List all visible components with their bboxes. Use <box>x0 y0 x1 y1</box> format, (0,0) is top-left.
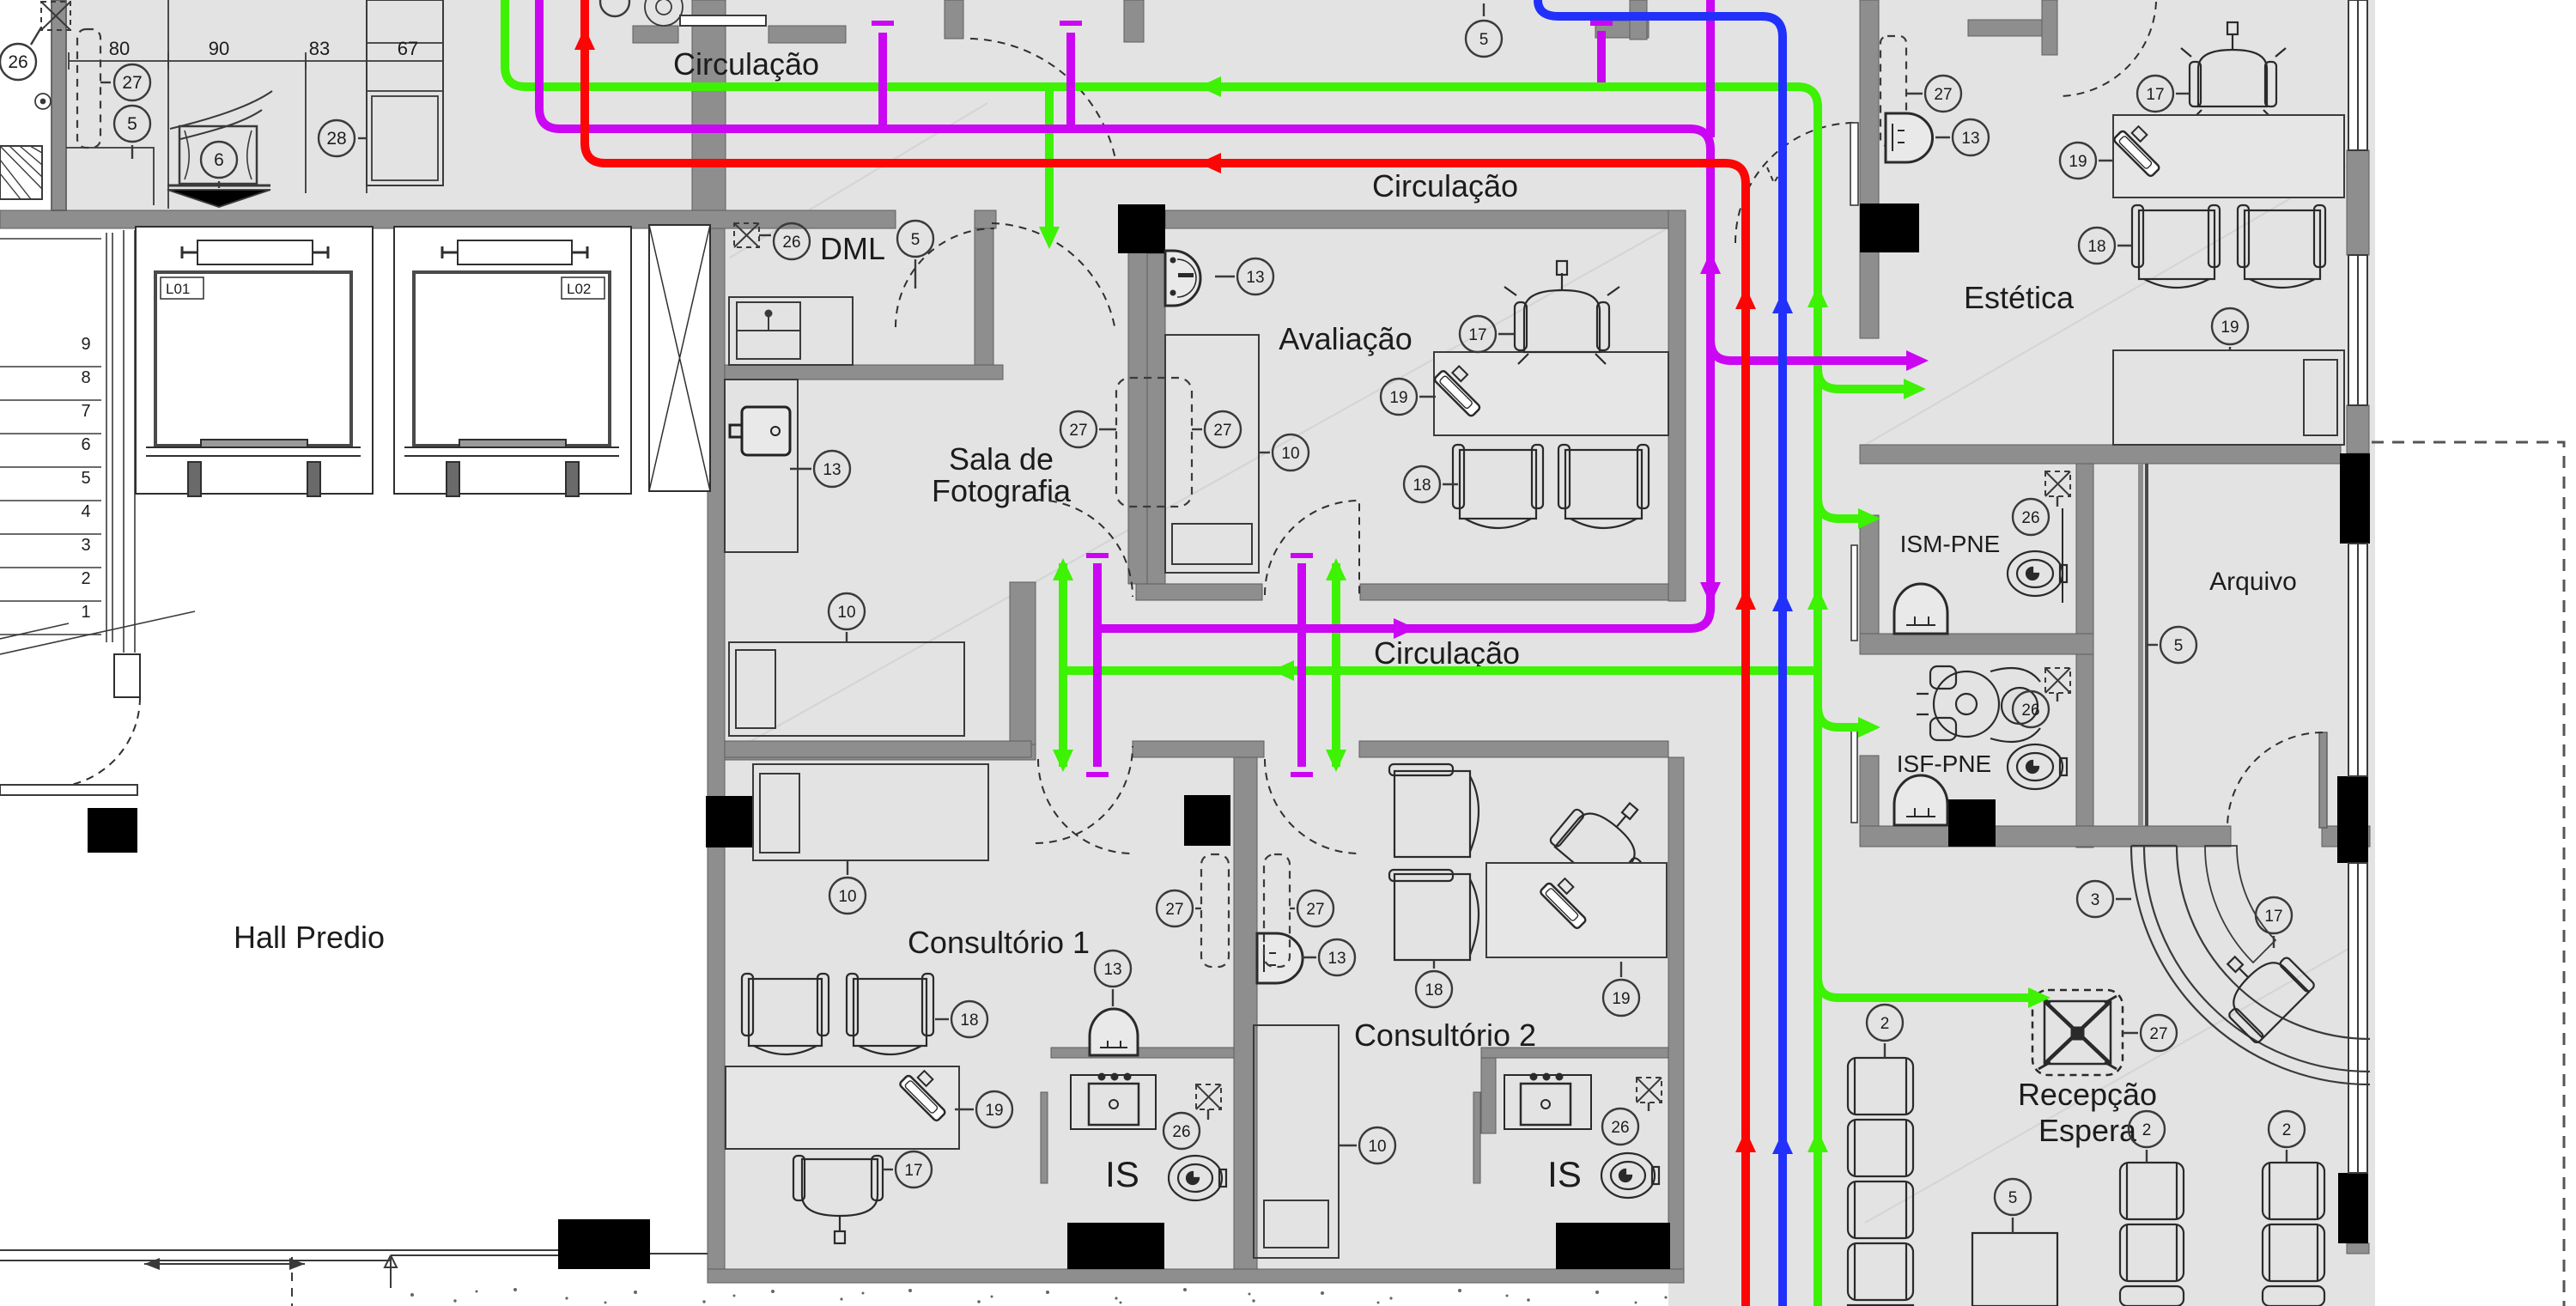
svg-text:19: 19 <box>2069 153 2087 171</box>
svg-text:10: 10 <box>1281 445 1299 463</box>
svg-text:18: 18 <box>960 1011 978 1030</box>
svg-text:27: 27 <box>1165 901 1183 919</box>
svg-text:90: 90 <box>209 38 229 59</box>
svg-text:Circulação: Circulação <box>1372 168 1518 203</box>
svg-text:10: 10 <box>1368 1138 1386 1156</box>
svg-text:Recepção: Recepção <box>2018 1077 2157 1112</box>
svg-text:83: 83 <box>309 38 330 59</box>
svg-text:Consultório 1: Consultório 1 <box>908 925 1090 960</box>
svg-text:19: 19 <box>1389 389 1407 407</box>
svg-text:Arquivo: Arquivo <box>2209 568 2297 596</box>
svg-text:5: 5 <box>2008 1189 2018 1207</box>
svg-text:2: 2 <box>2282 1121 2292 1139</box>
svg-text:26: 26 <box>2021 702 2039 720</box>
svg-text:5: 5 <box>127 114 137 134</box>
svg-text:27: 27 <box>122 73 142 93</box>
svg-text:2: 2 <box>1880 1015 1890 1033</box>
svg-text:ISM-PNE: ISM-PNE <box>1900 531 2001 557</box>
svg-text:10: 10 <box>838 888 856 906</box>
svg-text:7: 7 <box>81 402 90 421</box>
svg-text:5: 5 <box>2174 637 2184 655</box>
svg-text:DML: DML <box>820 231 885 266</box>
svg-text:13: 13 <box>1961 130 1979 148</box>
svg-text:80: 80 <box>109 38 130 59</box>
svg-text:26: 26 <box>1172 1123 1190 1141</box>
svg-text:8: 8 <box>81 368 90 387</box>
svg-text:26: 26 <box>782 234 800 252</box>
svg-text:27: 27 <box>1213 422 1231 440</box>
svg-text:Sala de: Sala de <box>949 441 1054 477</box>
svg-text:18: 18 <box>1425 981 1443 999</box>
svg-text:17: 17 <box>2264 908 2282 926</box>
svg-text:27: 27 <box>2149 1025 2167 1043</box>
svg-text:2: 2 <box>81 569 90 588</box>
svg-text:IS: IS <box>1547 1154 1582 1194</box>
svg-text:5: 5 <box>81 469 90 488</box>
svg-text:26: 26 <box>1611 1119 1629 1137</box>
svg-text:27: 27 <box>1069 422 1087 440</box>
svg-text:6: 6 <box>214 150 224 170</box>
svg-text:67: 67 <box>398 38 418 59</box>
svg-text:ISF-PNE: ISF-PNE <box>1897 750 1991 777</box>
svg-text:13: 13 <box>1246 269 1264 287</box>
svg-text:3: 3 <box>81 536 90 555</box>
svg-text:Espera: Espera <box>2038 1113 2137 1148</box>
svg-text:13: 13 <box>823 461 841 479</box>
svg-text:Avaliação: Avaliação <box>1279 321 1412 356</box>
svg-text:9: 9 <box>81 335 90 354</box>
svg-text:17: 17 <box>904 1162 922 1180</box>
svg-text:5: 5 <box>911 231 920 249</box>
svg-text:Fotografia: Fotografia <box>932 473 1072 508</box>
svg-text:26: 26 <box>8 52 27 72</box>
svg-text:13: 13 <box>1327 950 1346 968</box>
svg-text:19: 19 <box>2221 319 2239 337</box>
svg-text:1: 1 <box>81 603 90 622</box>
svg-text:18: 18 <box>2087 238 2105 256</box>
svg-text:13: 13 <box>1103 961 1121 979</box>
svg-text:6: 6 <box>81 435 90 454</box>
svg-text:IS: IS <box>1105 1154 1139 1194</box>
svg-text:10: 10 <box>837 604 855 622</box>
svg-text:17: 17 <box>2146 86 2164 104</box>
svg-text:28: 28 <box>326 129 346 149</box>
svg-text:Circulação: Circulação <box>1374 635 1520 671</box>
svg-text:Estética: Estética <box>1964 280 2075 315</box>
svg-text:2: 2 <box>2142 1121 2152 1139</box>
svg-text:18: 18 <box>1413 477 1431 495</box>
svg-text:5: 5 <box>1479 31 1489 49</box>
svg-text:3: 3 <box>2091 891 2100 909</box>
svg-text:4: 4 <box>81 502 90 521</box>
svg-text:27: 27 <box>1934 86 1952 104</box>
svg-text:Hall Predio: Hall Predio <box>234 920 385 955</box>
svg-text:Circulação: Circulação <box>673 46 819 82</box>
svg-text:26: 26 <box>2021 509 2039 527</box>
svg-text:19: 19 <box>985 1102 1003 1120</box>
svg-text:17: 17 <box>1468 326 1486 344</box>
svg-text:L02: L02 <box>567 281 591 297</box>
svg-text:27: 27 <box>1306 901 1324 919</box>
svg-text:19: 19 <box>1612 990 1630 1008</box>
svg-text:Consultório 2: Consultório 2 <box>1354 1017 1536 1053</box>
svg-text:L01: L01 <box>166 281 190 297</box>
